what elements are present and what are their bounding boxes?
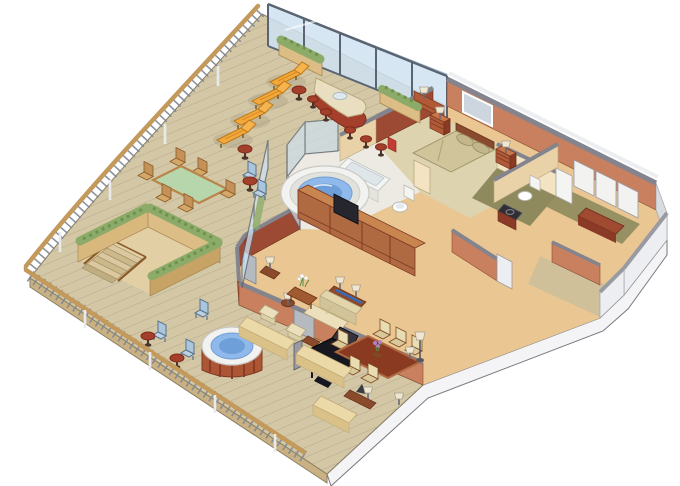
hot-tub-water-deep [219, 338, 245, 354]
floor-plan-page [0, 0, 680, 486]
toilet-seat [396, 203, 405, 209]
guest-toilet-bowl [518, 191, 532, 200]
enclosure-wall-b2-cap [237, 247, 239, 281]
bar-sink [333, 93, 347, 100]
floor-plan-illustration [0, 0, 680, 486]
